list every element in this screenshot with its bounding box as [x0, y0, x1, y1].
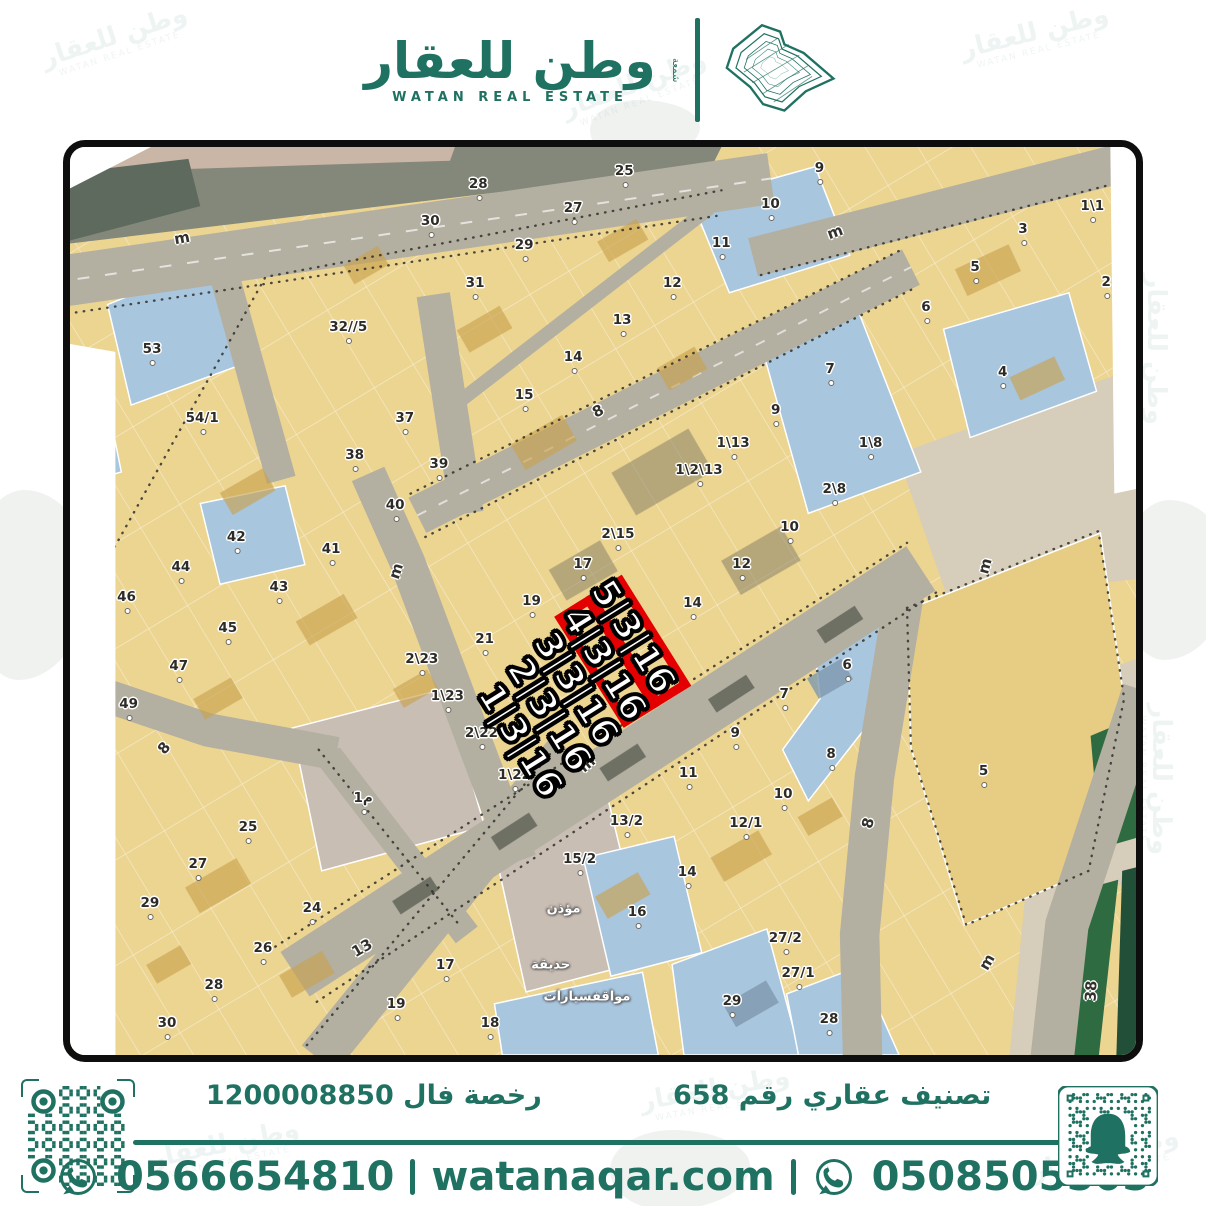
brand-divider-bar: [695, 18, 700, 122]
separator-bar: [410, 1159, 415, 1195]
qr-bracket: [117, 1175, 135, 1193]
footer-divider: [133, 1140, 1074, 1145]
qr-code: [28, 1086, 128, 1186]
fal-license: رخصة فال 1200008850: [145, 1080, 603, 1111]
brand-text: وطن للعقار WATAN REAL ESTATE: [364, 35, 656, 105]
saudi-map-contours-icon: [714, 14, 842, 126]
phone-number-left: 0566654810: [116, 1154, 394, 1200]
cadastral-map: 25282730102911311213141591\131\2\1391\13…: [63, 140, 1143, 1062]
qr-bracket: [21, 1175, 39, 1193]
real-estate-poster: وطن للعقارWATAN REAL ESTATEوطن للعقارWAT…: [0, 0, 1206, 1206]
snapchat-snapcode: [1058, 1086, 1158, 1186]
brand-header: وطن للعقار WATAN REAL ESTATE شمعة: [0, 0, 1206, 140]
separator-bar: [791, 1159, 796, 1195]
brand-side-text: شمعة: [670, 27, 681, 113]
classification-number: تصنيف عقاري رقم 658: [603, 1080, 1061, 1111]
qr-bracket: [117, 1079, 135, 1097]
qr-bracket: [21, 1079, 39, 1097]
whatsapp-icon: [812, 1155, 856, 1199]
brand-name-arabic: وطن للعقار: [364, 35, 656, 88]
satellite-parcel-map: [70, 147, 1136, 1055]
brand-name-english: WATAN REAL ESTATE: [392, 90, 628, 105]
footer: رخصة فال 1200008850 تصنيف عقاري رقم 658 …: [0, 1062, 1206, 1206]
website-url: watanaqar.com: [431, 1154, 774, 1200]
contact-row: 0566654810 watanaqar.com 0508505505: [0, 1154, 1206, 1200]
